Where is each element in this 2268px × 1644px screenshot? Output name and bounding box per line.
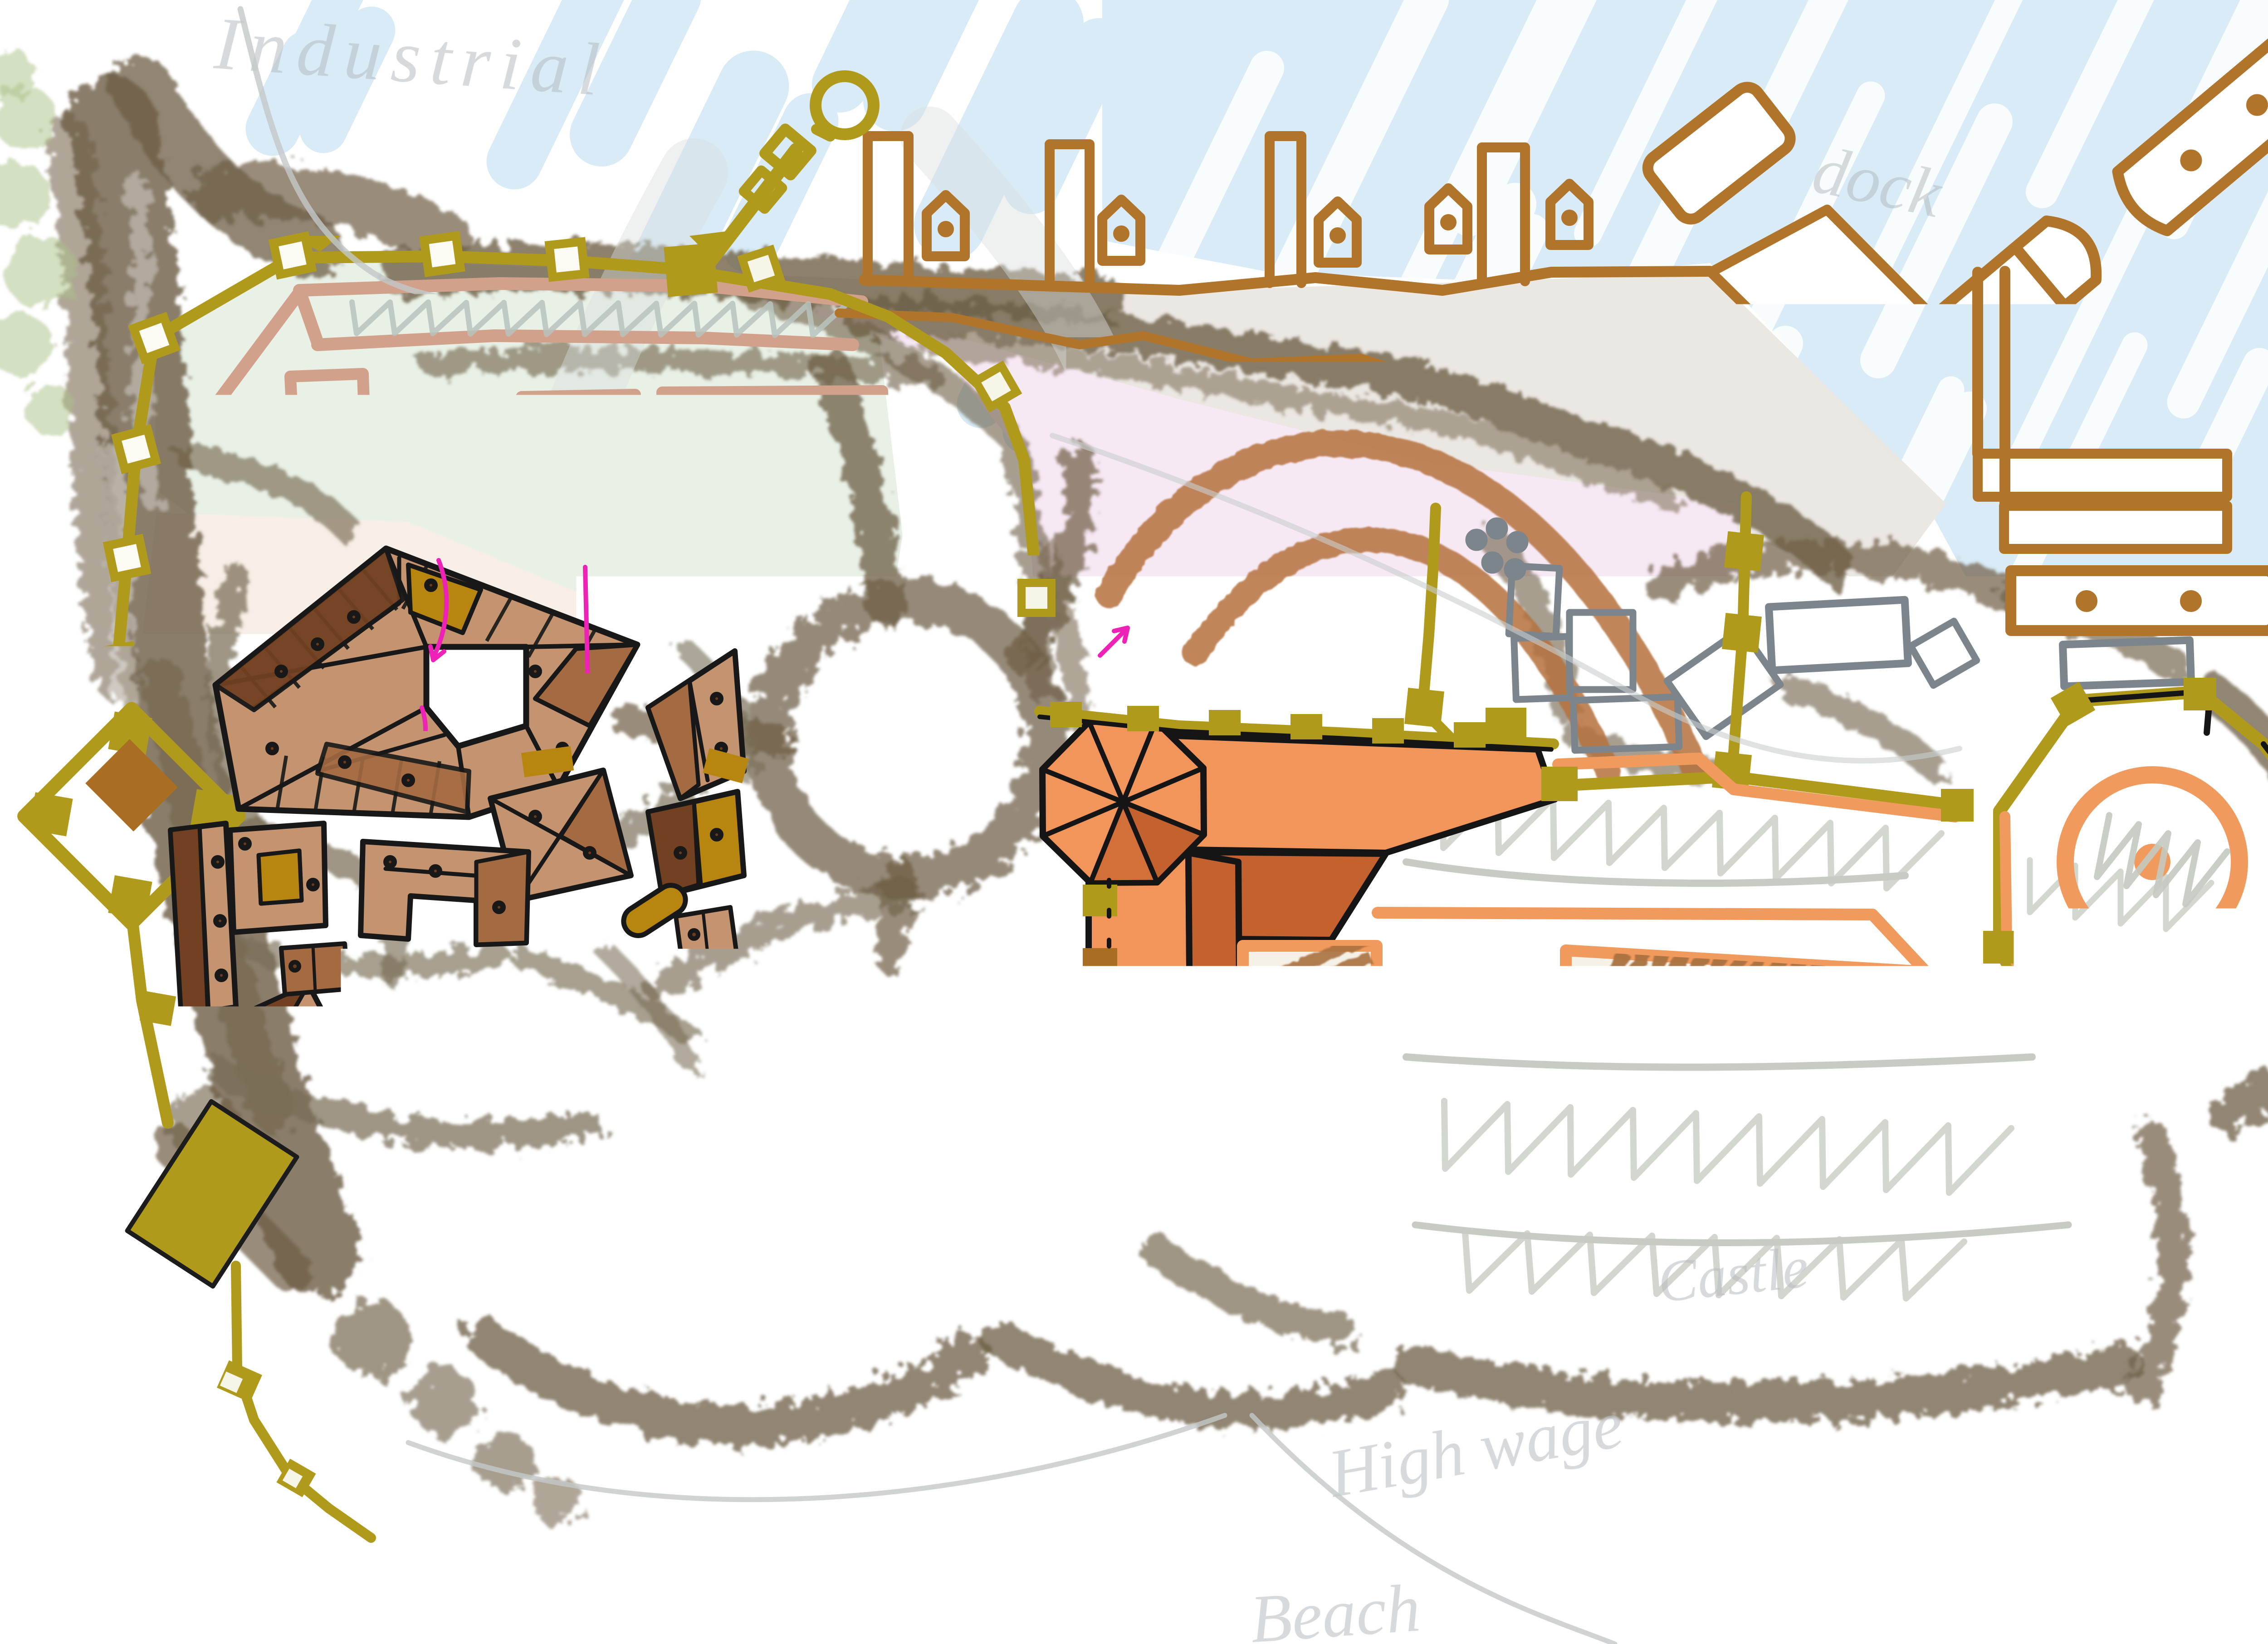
svg-text:Beach: Beach — [1248, 1570, 1422, 1644]
